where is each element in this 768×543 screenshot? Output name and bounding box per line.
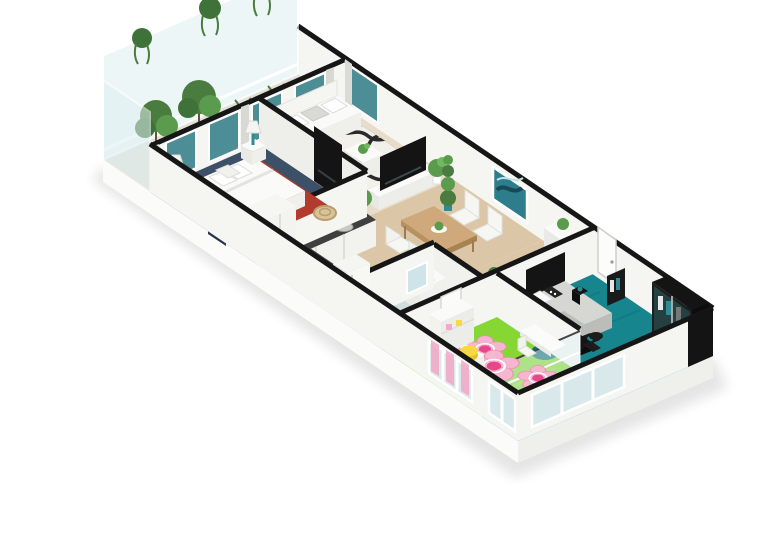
hanging-clothes [616,278,620,290]
hanging-clothes [676,307,681,321]
shelf-toy [446,324,452,330]
plant-foliage [440,190,456,206]
hanging-clothes [666,301,671,315]
table-plant [364,143,370,149]
floor-plan-svg [0,0,768,543]
floor-plan-render [0,0,768,543]
shelf-toy [456,320,462,326]
plant-foliage [442,165,454,177]
console-plant [557,218,569,230]
hanging-clothes [610,280,614,292]
pink-curtain [461,360,469,396]
pillow-dot [550,291,552,293]
rattan-chair [314,206,336,220]
plant-foliage [443,155,453,165]
side-table-deco [578,287,583,292]
tree-foliage [178,98,198,118]
hanging-clothes [658,296,663,310]
desk-chair-back [589,332,603,340]
back-window-curtain [345,59,352,108]
pink-curtain [431,340,439,376]
table-centerpiece-plant [435,222,444,231]
pillow-dot [554,293,556,295]
pink-curtain [446,350,454,386]
plant-foliage [441,177,455,191]
door-knob [610,260,613,263]
plant-pot [433,176,441,184]
flower-center [487,362,501,371]
